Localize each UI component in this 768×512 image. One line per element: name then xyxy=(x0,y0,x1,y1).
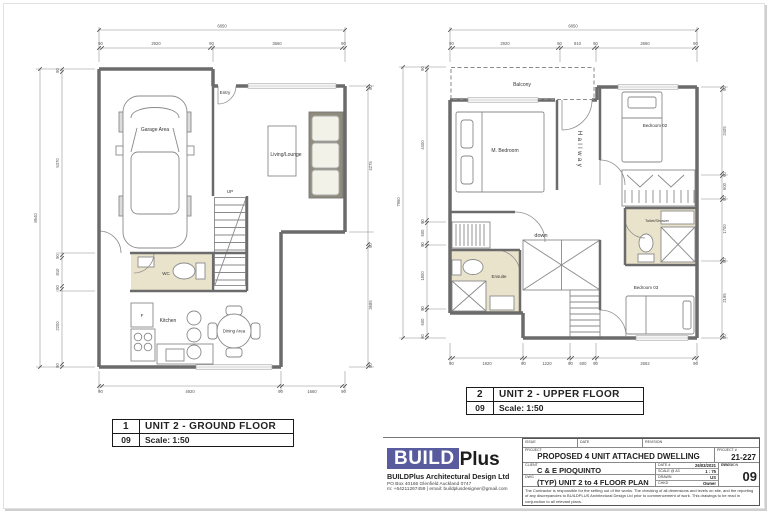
svg-text:4275: 4275 xyxy=(368,161,373,171)
up-label: UP xyxy=(227,189,233,194)
svg-text:90: 90 xyxy=(368,243,373,248)
svg-text:7960: 7960 xyxy=(396,197,401,207)
svg-text:90: 90 xyxy=(722,258,727,263)
svg-text:90: 90 xyxy=(420,242,425,247)
ground-dim-lines xyxy=(36,27,374,392)
svg-text:90: 90 xyxy=(521,361,526,366)
plan-title-text: UNIT 2 - GROUND FLOOR xyxy=(140,420,281,433)
hall-wardrobe-icon xyxy=(452,222,490,248)
sheet-number: 09 xyxy=(113,434,140,446)
svg-text:90: 90 xyxy=(722,334,727,339)
bedroom03-label: Bedroom 03 xyxy=(634,285,659,290)
plan-scale: Scale: 1:50 xyxy=(140,434,194,446)
scale-value: 1 : 75 xyxy=(705,469,716,474)
hallway-label: Hallway xyxy=(576,131,582,170)
svg-text:600: 600 xyxy=(722,182,727,190)
drawn-label: DRAWN xyxy=(658,476,671,480)
wardrobe02-icon xyxy=(622,170,695,206)
svg-text:2200: 2200 xyxy=(55,321,60,331)
svg-text:1800: 1800 xyxy=(420,271,425,281)
svg-text:1700: 1700 xyxy=(722,224,727,234)
upper-plan-title: 2 UNIT 2 - UPPER FLOOR 09 Scale: 1:50 xyxy=(466,387,644,415)
wc-label: WC xyxy=(162,271,170,276)
svg-text:90: 90 xyxy=(449,361,454,366)
balcony-label: Balcony xyxy=(513,82,531,88)
plan-number: 2 xyxy=(467,388,494,401)
svg-text:810: 810 xyxy=(55,268,60,276)
company-name: BUILDPlus Architectural Design Ltd xyxy=(387,472,518,481)
scale-a3-label: SCALE @ A3 xyxy=(658,470,680,474)
svg-text:8640: 8640 xyxy=(33,213,38,223)
toilet-icon xyxy=(173,263,205,279)
svg-text:90: 90 xyxy=(368,85,373,90)
svg-text:90: 90 xyxy=(278,389,283,394)
svg-text:90: 90 xyxy=(98,41,103,46)
project-name: PROPOSED 4 UNIT ATTACHED DWELLING xyxy=(523,452,714,461)
plan-number: 1 xyxy=(113,420,140,433)
car-icon xyxy=(116,96,194,248)
svg-text:90: 90 xyxy=(449,41,454,46)
svg-text:3685: 3685 xyxy=(368,300,373,310)
floor-plan-drawing: Garage Area Entry Living/Lounge UP WC Ki… xyxy=(0,0,768,432)
svg-text:600: 600 xyxy=(420,318,425,326)
company-contact: m: +64211267459 | email: buildplusdesign… xyxy=(387,487,518,492)
dwg-label: DWG xyxy=(525,476,534,480)
svg-text:4400: 4400 xyxy=(420,140,425,150)
svg-text:90: 90 xyxy=(209,41,214,46)
svg-text:90: 90 xyxy=(420,306,425,311)
svg-text:1920: 1920 xyxy=(482,361,492,366)
svg-text:2920: 2920 xyxy=(151,41,161,46)
client-name: C & E PIOQUINTO xyxy=(537,466,601,475)
title-block-table: ISSUE DATE REVISION PROJECT PROPOSED 4 U… xyxy=(522,438,760,506)
revision-label: REVISION xyxy=(643,439,759,447)
drawn-value: US xyxy=(710,475,716,480)
svg-text:1220: 1220 xyxy=(542,361,552,366)
entry-label: Entry xyxy=(220,90,231,95)
svg-text:90: 90 xyxy=(693,361,698,366)
company-pane: BUILDPlus BUILDPlus Architectural Design… xyxy=(383,438,522,506)
stairs-down-icon xyxy=(523,240,600,338)
svg-text:90: 90 xyxy=(593,361,598,366)
buildplus-logo: BUILDPlus xyxy=(387,441,518,469)
svg-text:90: 90 xyxy=(693,41,698,46)
svg-text:90: 90 xyxy=(593,41,598,46)
svg-text:2660: 2660 xyxy=(640,41,650,46)
project-no-value: 21-227 xyxy=(731,453,756,462)
ground-floor-plan: Garage Area Entry Living/Lounge UP WC Ki… xyxy=(33,24,374,395)
svg-text:90: 90 xyxy=(98,389,103,394)
svg-text:3660: 3660 xyxy=(272,41,282,46)
svg-text:1660: 1660 xyxy=(307,389,317,394)
svg-text:600: 600 xyxy=(420,229,425,237)
svg-text:90: 90 xyxy=(722,86,727,91)
title-block: BUILDPlus BUILDPlus Architectural Design… xyxy=(383,437,760,506)
svg-text:6850: 6850 xyxy=(568,24,578,29)
bed03-icon xyxy=(626,296,694,334)
svg-text:90: 90 xyxy=(368,363,373,368)
dining-label: Dining Area xyxy=(223,329,246,334)
toilet-shower-label: Toilet/Shower xyxy=(645,218,670,223)
svg-text:90: 90 xyxy=(55,285,60,290)
logo-plus-mark: Plus xyxy=(460,450,500,469)
plan-title-text: UNIT 2 - UPPER FLOOR xyxy=(494,388,625,401)
svg-text:90: 90 xyxy=(420,219,425,224)
m-bedroom-label: M. Bedroom xyxy=(491,148,518,154)
sheet-number: 09 xyxy=(467,402,494,414)
svg-text:90: 90 xyxy=(55,363,60,368)
client-label: CLIENT xyxy=(525,464,538,468)
plan-scale: Scale: 1:50 xyxy=(494,402,548,414)
svg-text:90: 90 xyxy=(341,41,346,46)
fridge-label: F xyxy=(141,313,144,318)
svg-text:90: 90 xyxy=(722,196,727,201)
bedroom02-label: Bedroom 02 xyxy=(643,123,668,128)
living-label: Living/Lounge xyxy=(270,152,301,158)
upper-floor-plan: Balcony M. Bedroom Bedroom 02 Hallway To… xyxy=(396,24,728,367)
svg-text:5370: 5370 xyxy=(55,158,60,168)
svg-text:2662: 2662 xyxy=(640,361,650,366)
dwg-title: (TYP) UNIT 2 to 4 FLOOR PLAN xyxy=(537,478,649,487)
svg-text:910: 910 xyxy=(574,41,582,46)
svg-text:90: 90 xyxy=(341,389,346,394)
sofa-icon xyxy=(309,112,343,198)
svg-text:90: 90 xyxy=(420,334,425,339)
stairs-up-icon xyxy=(215,198,247,286)
ground-furniture xyxy=(116,96,343,364)
svg-text:2920: 2920 xyxy=(500,41,510,46)
disclaimer-text: The Contractor is responsible for the se… xyxy=(523,486,759,505)
date-value: 26/03/2021 xyxy=(695,463,716,468)
svg-text:600: 600 xyxy=(580,361,588,366)
svg-text:90: 90 xyxy=(420,66,425,71)
ensuite-label: Ensuite xyxy=(491,274,507,279)
kitchen-label: Kitchen xyxy=(160,318,177,324)
ground-dim-labels: 6850 90 2920 90 3660 90 8640 90 5370 90 … xyxy=(33,24,373,395)
svg-text:90: 90 xyxy=(722,172,727,177)
svg-text:90: 90 xyxy=(55,68,60,73)
svg-text:90: 90 xyxy=(55,254,60,259)
date-label: DATE xyxy=(578,439,643,447)
svg-text:6850: 6850 xyxy=(217,24,227,29)
revision-label-2: REVISION xyxy=(721,464,738,485)
ground-plan-title: 1 UNIT 2 - GROUND FLOOR 09 Scale: 1:50 xyxy=(112,419,294,447)
svg-text:90: 90 xyxy=(557,41,562,46)
chkd-label: CHKD xyxy=(658,482,668,486)
logo-build-mark: BUILD xyxy=(387,448,459,469)
down-label: down xyxy=(534,233,547,239)
svg-text:2405: 2405 xyxy=(722,126,727,136)
coffee-table-icon xyxy=(268,126,296,176)
svg-text:2195: 2195 xyxy=(722,293,727,303)
date-no-label: DATE # xyxy=(658,464,670,468)
garage-label: Garage Area xyxy=(141,127,170,133)
svg-text:4920: 4920 xyxy=(185,389,195,394)
issue-label: ISSUE xyxy=(523,439,578,447)
svg-text:90: 90 xyxy=(568,361,573,366)
